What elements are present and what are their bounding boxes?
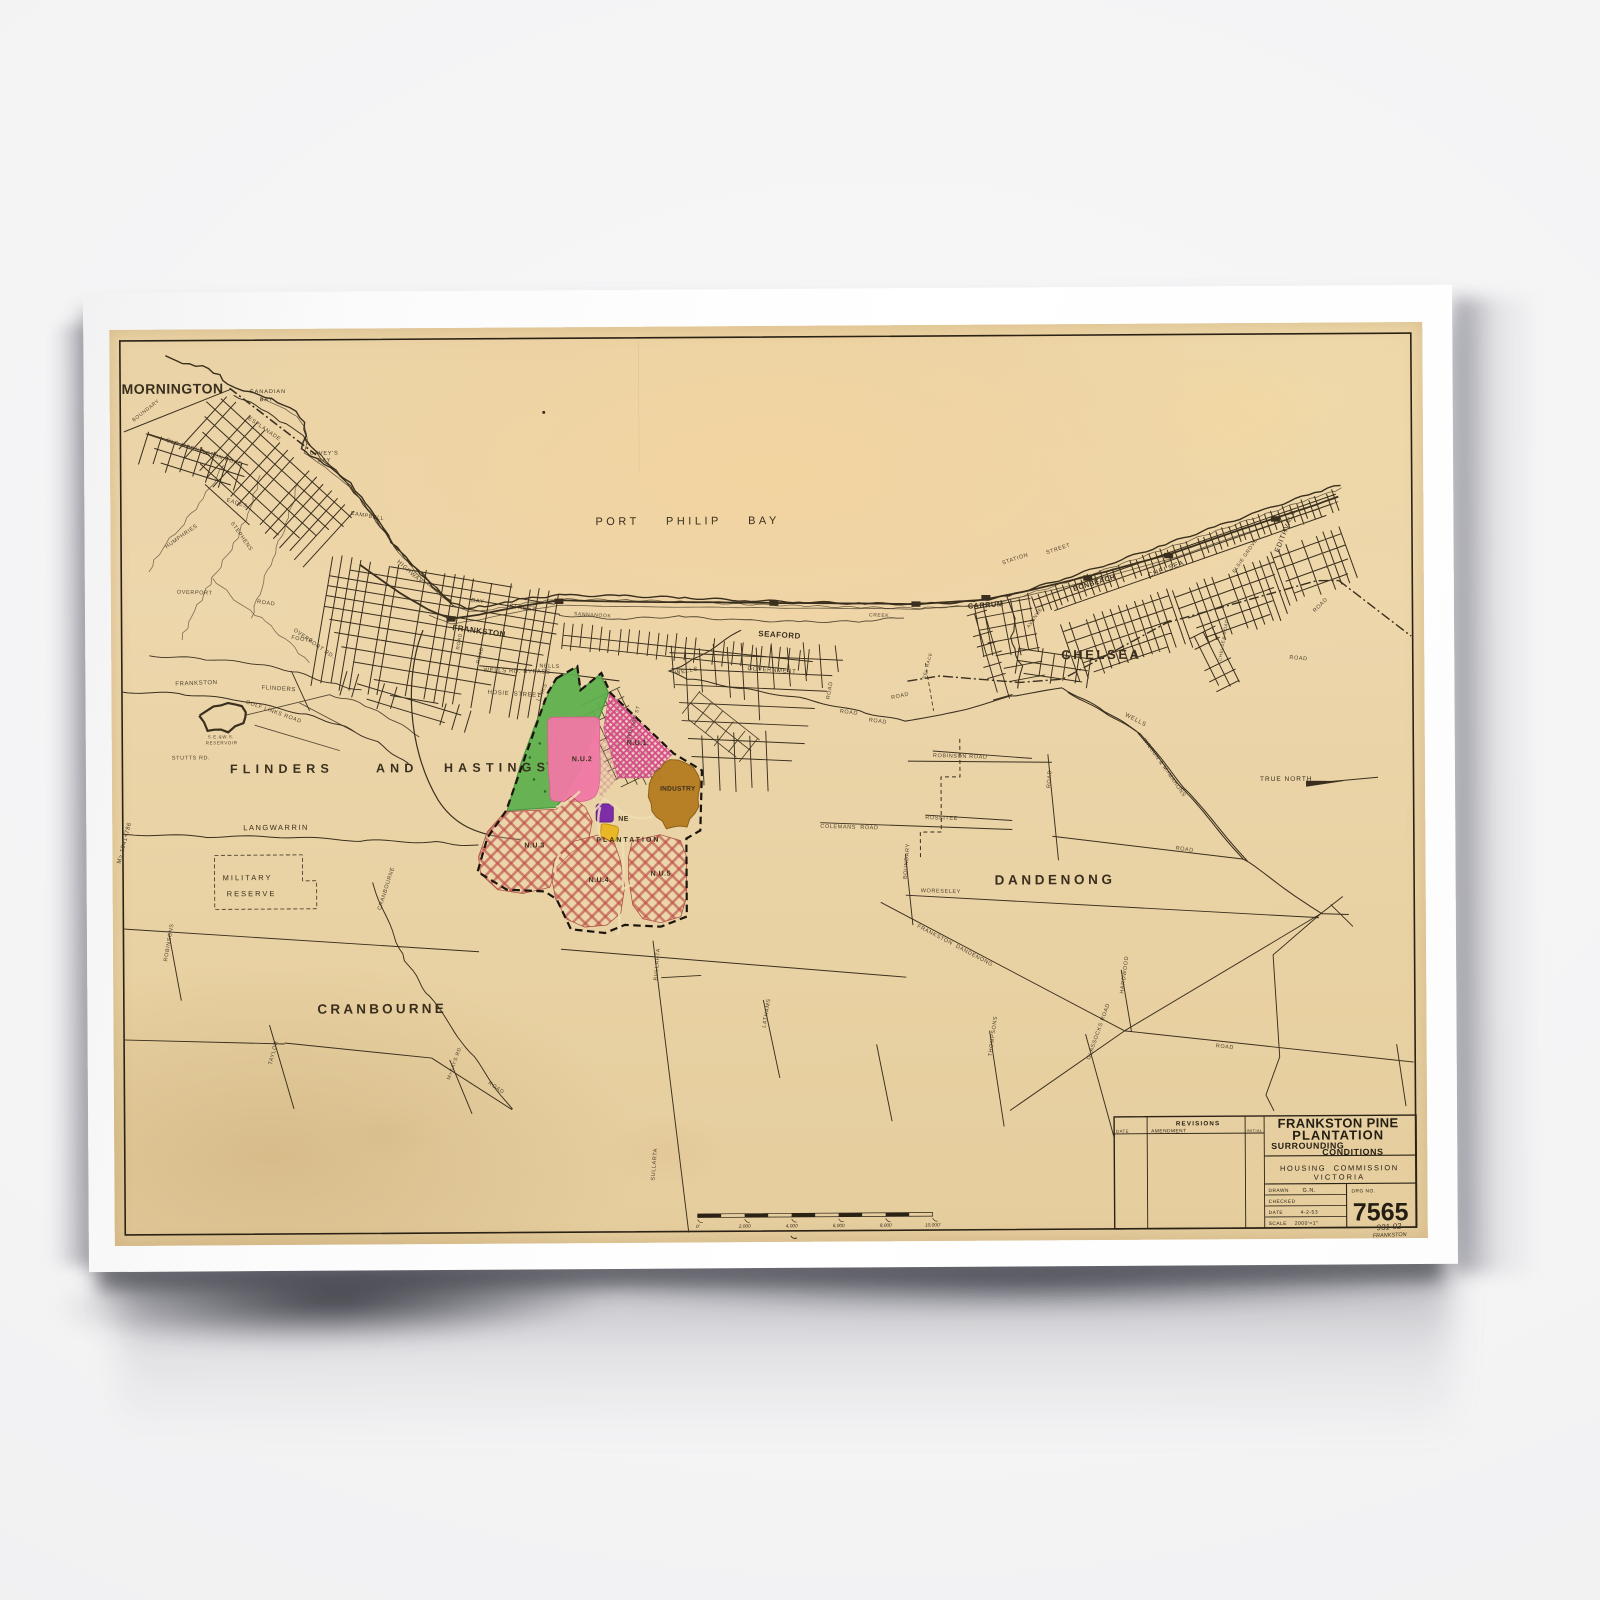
svg-text:N.U.4.: N.U.4. <box>589 877 612 884</box>
svg-text:CRANBOURNE: CRANBOURNE <box>377 866 396 911</box>
svg-text:PORT PHILIP BAY: PORT PHILIP BAY <box>595 515 779 528</box>
svg-text:CHECKED: CHECKED <box>1269 1199 1296 1205</box>
svg-text:S.E.&W.S.: S.E.&W.S. <box>208 734 234 739</box>
svg-text:ROAD: ROAD <box>257 599 276 607</box>
svg-text:ROAD: ROAD <box>487 1080 505 1095</box>
svg-text:HOSIE STREET: HOSIE STREET <box>487 690 541 699</box>
svg-text:OVERPORT: OVERPORT <box>177 590 213 597</box>
svg-text:4-2-53: 4-2-53 <box>1301 1210 1318 1216</box>
svg-text:CANADIAN: CANADIAN <box>250 389 286 395</box>
svg-text:SULLARTA: SULLARTA <box>650 1148 659 1181</box>
svg-text:FLINDERS: FLINDERS <box>261 685 296 693</box>
svg-text:FOOTE: FOOTE <box>291 635 314 645</box>
svg-text:ROAD: ROAD <box>475 646 485 664</box>
svg-text:CARRUM: CARRUM <box>967 599 1003 611</box>
svg-text:BAY: BAY <box>471 598 485 606</box>
svg-text:4,000: 4,000 <box>786 1223 798 1229</box>
svg-text:DRG NO.: DRG NO. <box>1352 1188 1376 1194</box>
svg-text:CONDITIONS: CONDITIONS <box>1322 1147 1383 1157</box>
svg-text:NELLS: NELLS <box>539 663 560 670</box>
svg-text:STATION: STATION <box>1001 552 1029 566</box>
svg-text:ROAD: ROAD <box>1175 846 1194 854</box>
svg-text:STREET: STREET <box>1045 543 1071 557</box>
svg-text:CREEK: CREEK <box>869 612 889 619</box>
svg-text:GLASSOCKS ROAD: GLASSOCKS ROAD <box>1086 1002 1112 1060</box>
svg-text:AND: AND <box>376 761 419 775</box>
svg-text:WORESELEY: WORESELEY <box>921 888 961 895</box>
svg-text:10,000': 10,000' <box>925 1222 942 1228</box>
svg-text:ROAD: ROAD <box>826 681 835 700</box>
svg-text:HOUSING COMMISSION: HOUSING COMMISSION <box>1280 1163 1399 1173</box>
svg-text:8,000: 8,000 <box>880 1223 892 1229</box>
svg-text:931-02: 931-02 <box>1376 1221 1402 1232</box>
svg-text:OLD MORNINGTON ROAD: OLD MORNINGTON ROAD <box>165 438 243 468</box>
svg-text:DANDENONG: DANDENONG <box>995 872 1116 888</box>
svg-text:BAY: BAY <box>260 397 274 403</box>
svg-text:6,000: 6,000 <box>833 1223 845 1229</box>
svg-text:COLEMANS ROAD: COLEMANS ROAD <box>820 824 878 832</box>
svg-text:AVENUE: AVENUE <box>1026 607 1044 630</box>
svg-text:PLANTATION: PLANTATION <box>596 837 660 844</box>
svg-text:ROAD: ROAD <box>839 709 858 717</box>
svg-text:DATE: DATE <box>1116 1129 1129 1134</box>
svg-text:0': 0' <box>696 1224 701 1230</box>
svg-text:ROBINSON ROAD: ROBINSON ROAD <box>933 753 988 761</box>
svg-text:2000'=1″: 2000'=1″ <box>1295 1221 1319 1227</box>
svg-text:CHELSEA: CHELSEA <box>1147 560 1185 580</box>
svg-text:N.U.5: N.U.5 <box>651 871 671 878</box>
svg-text:ROAD: ROAD <box>1312 597 1329 614</box>
svg-text:INDUSTRY: INDUSTRY <box>660 785 696 792</box>
svg-text:SCALE: SCALE <box>1269 1221 1287 1227</box>
svg-text:N.U.1.: N.U.1. <box>627 740 650 747</box>
svg-text:THOMPSONS: THOMPSONS <box>988 1016 999 1057</box>
svg-text:ROAD: ROAD <box>1289 655 1308 662</box>
svg-text:ROAD: ROAD <box>868 717 887 725</box>
svg-text:WELLS: WELLS <box>1124 712 1147 728</box>
svg-text:M˃KAYS RD.: M˃KAYS RD. <box>446 1045 464 1081</box>
svg-text:WILSON & M˃MAHONS: WILSON & M˃MAHONS <box>1141 737 1187 798</box>
svg-text:MILITARY: MILITARY <box>223 873 273 882</box>
svg-text:DRAWN: DRAWN <box>1269 1188 1290 1194</box>
svg-text:INITIAL: INITIAL <box>1247 1129 1263 1133</box>
svg-text:FRANKSTON DANDENONG: FRANKSTON DANDENONG <box>916 924 994 969</box>
svg-text:REVISIONS: REVISIONS <box>1176 1120 1221 1127</box>
svg-text:LANGWARRIN: LANGWARRIN <box>243 823 309 832</box>
svg-text:CAMPBELL: CAMPBELL <box>350 511 385 523</box>
svg-text:ROBINSONS: ROBINSONS <box>163 923 175 962</box>
svg-text:HASTINGS: HASTINGS <box>444 760 550 775</box>
svg-text:AMENDMENT: AMENDMENT <box>1151 1128 1186 1134</box>
svg-text:BAY: BAY <box>318 458 331 464</box>
svg-text:SANNANOOK: SANNANOOK <box>574 611 612 619</box>
svg-text:DATE: DATE <box>1269 1210 1283 1216</box>
svg-text:EEL RACE: EEL RACE <box>922 652 934 679</box>
svg-text:TRUE NORTH: TRUE NORTH <box>1260 776 1313 783</box>
svg-text:VICTORIA: VICTORIA <box>1314 1172 1365 1181</box>
svg-text:STUTTS RD.: STUTTS RD. <box>172 755 210 761</box>
svg-text:DAVEY'S: DAVEY'S <box>310 451 339 457</box>
svg-text:G.N.: G.N. <box>1303 1188 1316 1194</box>
svg-text:CHELSEA ROAD: CHELSEA ROAD <box>1217 619 1229 662</box>
svg-text:FRANKSTON: FRANKSTON <box>1373 1232 1407 1239</box>
svg-text:CRANBOURNE: CRANBOURNE <box>317 1001 447 1017</box>
svg-text:RESERVE: RESERVE <box>227 889 277 898</box>
svg-text:BOUNDARY: BOUNDARY <box>903 843 912 879</box>
svg-text:BONBEACH: BONBEACH <box>1072 574 1116 593</box>
svg-text:M˃ 1041+786: M˃ 1041+786 <box>117 822 134 865</box>
svg-text:N.U.3: N.U.3 <box>524 842 544 849</box>
svg-text:LATHAMS: LATHAMS <box>762 998 773 1028</box>
svg-text:BULLARTA: BULLARTA <box>653 948 662 981</box>
svg-text:ROAD: ROAD <box>1046 770 1053 789</box>
svg-text:MORNINGTON: MORNINGTON <box>122 380 224 397</box>
svg-text:2,000: 2,000 <box>738 1224 751 1230</box>
svg-text:N.U.2: N.U.2 <box>572 756 592 763</box>
svg-text:HARDWOOD: HARDWOOD <box>1119 956 1130 995</box>
svg-text:ROAD: ROAD <box>891 691 910 701</box>
svg-text:ROAD: ROAD <box>1215 1043 1234 1051</box>
svg-text:FRANKSTON: FRANKSTON <box>175 680 218 688</box>
svg-text:SEAFORD: SEAFORD <box>758 629 801 641</box>
svg-text:ROSSITEE: ROSSITEE <box>925 815 958 822</box>
svg-text:BOUNDARY: BOUNDARY <box>131 398 161 423</box>
svg-text:FLINDERS: FLINDERS <box>230 762 334 777</box>
svg-text:CHELSEA: CHELSEA <box>1061 647 1141 662</box>
svg-text:RESERVOIR: RESERVOIR <box>206 740 238 745</box>
svg-text:EADES: EADES <box>226 498 248 510</box>
svg-text:NE: NE <box>618 816 629 823</box>
